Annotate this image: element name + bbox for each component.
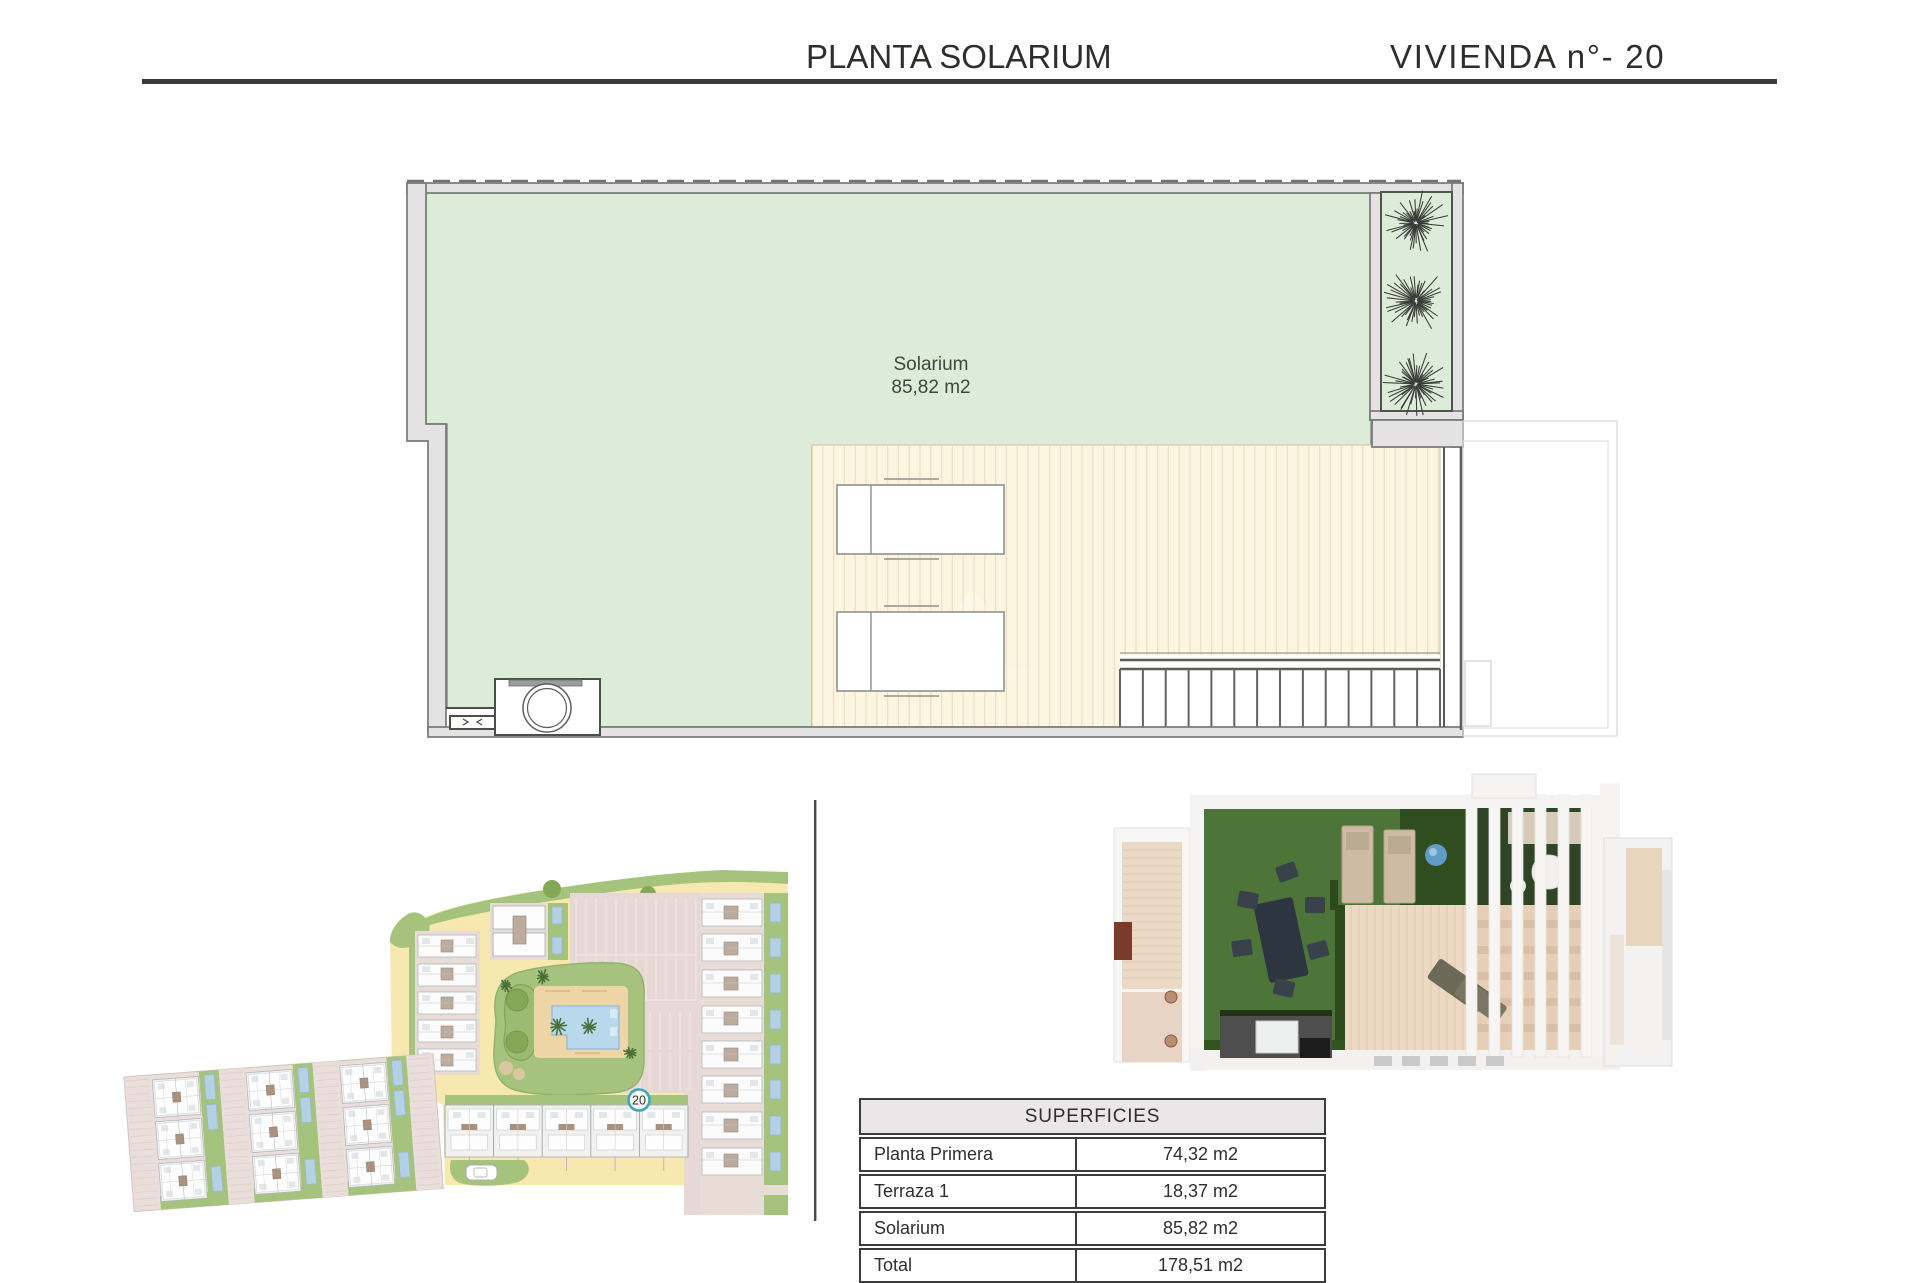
svg-text:85,82 m2: 85,82 m2 (891, 377, 970, 398)
svg-text:Solarium: Solarium (894, 354, 969, 375)
